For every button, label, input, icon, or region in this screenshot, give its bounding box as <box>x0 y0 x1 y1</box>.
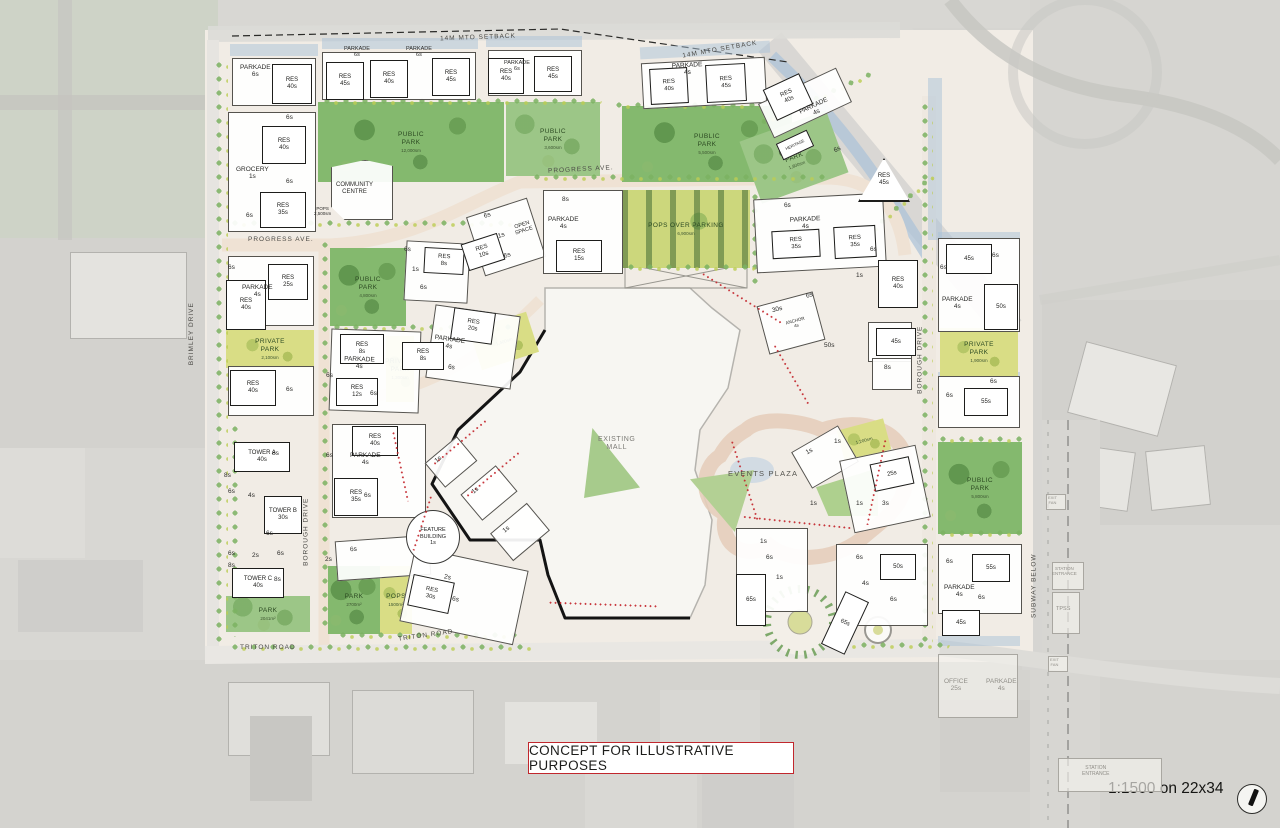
park-label: PUBLIC PARK <box>694 133 720 149</box>
building-label: 6s <box>364 492 371 499</box>
building-label: 6s <box>370 390 377 398</box>
tower-block: RES 25s <box>268 264 308 300</box>
park-label: PRIVATE PARK <box>964 341 994 357</box>
building-label: PARKADE 4s <box>986 678 1017 693</box>
building-label: 6s <box>890 596 897 603</box>
street-tree-row <box>936 432 1026 444</box>
building-label: 6s <box>228 550 235 557</box>
tower-block: RES 35s <box>771 229 820 259</box>
building-label: EXIT FAN <box>1050 658 1059 667</box>
park-block: PUBLIC PARK5,800sm <box>938 442 1022 534</box>
tower-block: RES 45s <box>534 56 572 92</box>
park-label: PARK <box>345 593 364 601</box>
park-label: PRIVATE PARK <box>255 338 285 354</box>
tower-block: RES 8s <box>423 247 464 275</box>
park-label: PUBLIC PARK <box>355 276 381 292</box>
park-block: PRIVATE PARK1,900sm <box>940 328 1018 376</box>
building-label: 1s <box>856 500 863 507</box>
building-label: 6s <box>784 202 791 210</box>
street-tree-row <box>212 58 228 642</box>
tower-block: RES 45s <box>432 58 470 96</box>
building-label: EXIT FAN <box>1048 496 1057 505</box>
street-tree-row <box>838 638 950 650</box>
tower-block: RES 40s <box>878 260 918 308</box>
building-label: 3s <box>882 500 889 507</box>
building-label: 8s <box>272 450 279 457</box>
building-label: 6s <box>404 246 411 254</box>
building-label: 4s <box>248 492 255 499</box>
street-label: BOROUGH DRIVE <box>916 326 923 394</box>
street-label: SUBWAY BELOW <box>1031 553 1038 618</box>
building-label: 50s <box>824 342 834 349</box>
building-label: 1s <box>810 500 817 507</box>
street-label: BRIMLEY DRIVE <box>188 302 195 365</box>
building-label: 8s <box>562 196 569 203</box>
park-label: POPS OVER PARKING <box>648 222 724 230</box>
park-area-label: 3,600sm <box>544 145 561 150</box>
building-label: 1s <box>412 266 419 273</box>
building-label: PARKADE 4s <box>548 216 579 231</box>
park-area-label: 12,000sm <box>401 148 421 153</box>
tower-block: RES 45s <box>705 63 747 103</box>
building-label: PARKADE 4s <box>790 215 821 232</box>
building-label: 6s <box>286 114 293 121</box>
street-tree-row <box>624 260 756 272</box>
building-label: PARKADE 6s <box>504 60 530 73</box>
building-label: 6s <box>246 212 253 219</box>
building-label: 6s <box>870 246 877 253</box>
building-label: 6s <box>228 264 235 271</box>
building-label: 6s <box>978 594 985 601</box>
building-label: 6s <box>946 392 953 399</box>
park-area-label: 2,100sm <box>261 355 278 360</box>
park-area-label: 4,800sm <box>359 293 376 298</box>
street-tree-row <box>318 238 331 634</box>
building-label: 1s <box>776 574 783 581</box>
tower-block: 45s <box>942 610 980 636</box>
building-block <box>1052 592 1080 634</box>
building-label: 6s <box>326 372 333 380</box>
park-block: PUBLIC PARK4,800sm <box>330 248 406 326</box>
building-label: STATION ENTRANCE <box>1082 766 1110 778</box>
building-label: 6s <box>286 386 293 393</box>
tower-block: 45s <box>946 244 992 274</box>
tower-block: RES 35s <box>260 192 306 228</box>
park-label: PUBLIC PARK <box>967 477 993 493</box>
building-label: 6s <box>326 452 333 459</box>
park-area-label: 5,800sm <box>971 494 988 499</box>
building-label: 6s <box>228 488 235 495</box>
building-label: PARKADE 4s <box>942 296 973 311</box>
building-label: GROCERY 1s <box>236 166 269 181</box>
building-block <box>872 358 912 390</box>
building-label: STATION ENTRANCE <box>1052 566 1077 576</box>
building-label: 6s <box>286 178 293 185</box>
street-tree-row <box>936 526 1026 538</box>
tower-block: 45s <box>876 328 916 356</box>
park-area-label: 1500m² <box>388 602 403 607</box>
water-strip <box>230 44 318 56</box>
park-label: PUBLIC PARK <box>540 128 566 144</box>
street-label: PROGRESS AVE. <box>248 236 314 243</box>
building-label: 6s <box>420 284 427 291</box>
building-label: 8s <box>228 562 235 569</box>
tower-block: RES 40s <box>370 60 408 98</box>
tower-block: RES 15s <box>556 240 602 272</box>
building-label: 6s <box>266 530 273 537</box>
tower-block: RES 40s <box>272 64 312 104</box>
building-label: 6s <box>992 252 999 259</box>
tower-block: TOWER A 40s <box>234 442 290 472</box>
building-label: 6s <box>766 554 773 561</box>
building-label: 6s <box>451 595 459 604</box>
building-label: 8s <box>274 576 281 583</box>
building-label: 1s <box>834 438 841 445</box>
north-arrow-icon <box>1237 784 1267 814</box>
building-label: 1s <box>760 538 767 545</box>
tower-block: 65s <box>736 574 766 626</box>
park-area-label: 2041m² <box>260 616 275 621</box>
tower-block: RES 40s <box>262 126 306 164</box>
park-label: PARK <box>259 607 278 615</box>
tower-block: 55s <box>972 554 1010 582</box>
tower-block: 50s <box>984 284 1018 330</box>
north-arrow-needle <box>1248 789 1259 807</box>
tower-block: 55s <box>964 388 1008 416</box>
building-label: PARKADE 6s <box>240 64 271 79</box>
park-block: POPS OVER PARKING6,900sm <box>622 190 750 268</box>
building-label: PARKADE 6s <box>406 46 432 59</box>
site-plan-canvas: CONCEPT FOR ILLUSTRATIVE PURPOSES 1:1500… <box>0 0 1280 828</box>
concept-note-box: CONCEPT FOR ILLUSTRATIVE PURPOSES <box>528 742 794 774</box>
building-label: 8s <box>224 472 231 479</box>
tower-block: TOWER B 30s <box>264 496 302 534</box>
building-label: 6s <box>277 550 284 557</box>
building-label: 4s <box>862 580 869 587</box>
building-label: 2s <box>252 552 259 559</box>
tower-block: RES 35s <box>833 225 877 259</box>
building-label: PARKADE 4s <box>350 452 381 467</box>
street-label: BOROUGH DRIVE <box>302 498 309 566</box>
park-area-label: 1,200sm <box>855 436 873 445</box>
building-label: 6s <box>990 378 997 385</box>
building-label: 2s <box>443 573 451 582</box>
park-area-label: 5,500sm <box>698 150 715 155</box>
building-label: 6s <box>856 554 863 561</box>
site-plan-page: { "annotation": { "concept": "CONCEPT FO… <box>0 0 1280 828</box>
building-label: PARKADE 6s <box>344 46 370 59</box>
building-block <box>1058 758 1162 792</box>
building-label: 6s <box>350 546 357 554</box>
park-area-label: 1,900sm <box>970 358 987 363</box>
building-label: 1s <box>856 272 863 279</box>
building-label: OFFICE 25s <box>944 678 968 693</box>
street-label: TRITON ROAD <box>240 644 296 651</box>
tower-block: RES 45s <box>326 62 364 100</box>
concept-note-text: CONCEPT FOR ILLUSTRATIVE PURPOSES <box>529 743 793 773</box>
building-label: 2s <box>325 556 332 563</box>
tower-block: 50s <box>880 554 916 580</box>
building-label: POPS 2,500sm <box>314 206 331 216</box>
building-label: PARKADE 4s <box>242 284 273 299</box>
park-label: PUBLIC PARK <box>398 131 424 147</box>
building-label: EVENTS PLAZA <box>728 470 798 479</box>
building-label: COMMUNITY CENTRE <box>336 182 373 196</box>
building-label: PARKADE 4s <box>944 584 975 599</box>
park-area-label: 2700m² <box>346 602 361 607</box>
building-label: 6s <box>940 264 947 271</box>
tower-block: RES 40s <box>230 370 276 406</box>
water-strip <box>938 636 1020 646</box>
building-label: 6s <box>448 364 456 372</box>
building-label: TPSS <box>1056 606 1070 612</box>
park-block: PRIVATE PARK2,100sm <box>226 330 314 368</box>
building-label: PARKADE 4s <box>344 355 375 371</box>
park-area-label: 6,900sm <box>677 231 694 236</box>
tower-block: RES 35s <box>334 478 378 516</box>
building-label: EXISTING MALL <box>598 436 635 452</box>
building-label: 8s <box>884 364 891 371</box>
building-label: PARKADE 4s <box>672 61 703 78</box>
building-label: 6s <box>946 558 953 565</box>
